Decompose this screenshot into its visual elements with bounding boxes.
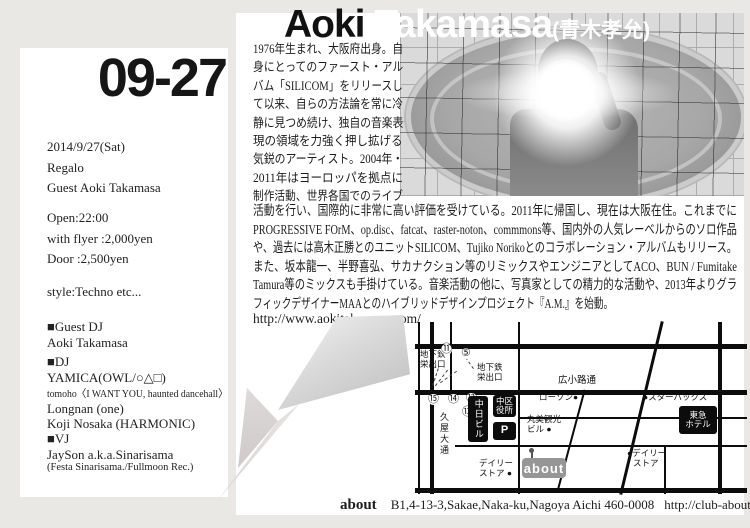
exit-number-11: ⑪ (441, 344, 452, 355)
camera-flash-core (533, 59, 597, 121)
road (718, 322, 722, 494)
artist-bio-column: 1976年生まれ、大阪府出身。自 身にとってのファースト・アル バム「SILIC… (253, 38, 429, 204)
road (430, 322, 434, 494)
bio-line: や、過去には高木正勝とのユニットSILICOM、Tujiko Norikoとのコ… (253, 236, 750, 255)
dj-name: tomoho〈I WANT YOU, haunted dancehall〉 (47, 385, 252, 401)
poi-daily-store-left: デイリー ストア ● (479, 458, 513, 478)
music-style: style:Techno etc... (47, 284, 141, 300)
bio-line: PROGRESSIVE FOrM、op.disc、fatcat、raster-n… (253, 218, 750, 237)
event-basic-info: 2014/9/27(Sat) Regalo Guest Aoki Takamas… (47, 139, 161, 201)
venue-name: about (340, 497, 377, 513)
artist-kanji-name: (青木孝允) (552, 19, 650, 42)
street-hisaya: 久屋大通 (439, 412, 449, 456)
building-tokyu-hotel: 東急ホテル (679, 406, 717, 434)
event-date-title: 09-27 (20, 51, 226, 105)
bio-line: 気鋭のアーティスト。2004年・ (253, 148, 429, 166)
road (455, 445, 747, 447)
exit-number-14: ⑭ (448, 394, 459, 405)
artist-first-name: Aoki (284, 3, 365, 46)
poi-starbucks: ●スターバックス (643, 392, 707, 402)
dj-name: Longnan (one) (47, 401, 252, 417)
lineup-guest-dj: ■Guest DJ Aoki Takamasa (47, 319, 128, 350)
subway-exit-label: 地下鉄 栄出口 (477, 362, 503, 382)
building-ward-office: 中区役所 (493, 395, 516, 417)
bio-line: Tamura等のミックスも手掛けている。音楽活動の他に、写真家としての精力的な活… (253, 273, 750, 292)
vj-crew: (Festa Sinarisama./Fullmoon Rec.) (47, 462, 193, 478)
event-door-info: Open:22:00 with flyer :2,000yen Door :2,… (47, 210, 153, 272)
venue-map: 地下鉄 栄出口 地下鉄 栄出口 ⑪ ⑤ ⑮ ⑭ ⑫ ⑬ 広小路通 久屋大通 中日… (415, 322, 747, 494)
artist-last-name: Takamasa (374, 3, 552, 46)
bio-line: バム「SILICOM」をリリースし (253, 75, 429, 93)
vj-name: JaySon a.k.a.Sinarisama (47, 447, 193, 463)
venue-logo-box: about (522, 458, 566, 478)
bio-line: また、坂本龍一、半野喜弘、サカナクション等のリミックスやエンジニアとしてACO、… (253, 255, 750, 274)
street-hirokoji: 広小路通 (558, 376, 596, 386)
road (418, 322, 420, 494)
venue-address-line: aboutB1,4-13-3,Sakae,Naka-ku,Nagoya Aich… (340, 497, 750, 514)
event-info-card: 09-27 2014/9/27(Sat) Regalo Guest Aoki T… (20, 48, 228, 497)
vj-heading: ■VJ (47, 431, 193, 447)
price-with-flyer: with flyer :2,000yen (47, 231, 153, 252)
poi-daily-store-right: ●デイリー ストア (627, 448, 666, 468)
event-flyer: 09-27 2014/9/27(Sat) Regalo Guest Aoki T… (0, 0, 750, 528)
dj-name: YAMICA(OWL/○△□) (47, 370, 252, 386)
lineup-dj: ■DJ YAMICA(OWL/○△□) tomoho〈I WANT YOU, h… (47, 354, 252, 432)
event-venue: Regalo (47, 160, 161, 181)
artist-bio-paragraph: 活動を行い、国際的に非常に高い評価を受けている。2011年に帰国し、現在は大阪在… (253, 199, 750, 329)
poi-marumi-bldg: 丸美観光 ビル ● (527, 414, 561, 434)
price-door: Door :2,500yen (47, 251, 153, 272)
artist-name-headline: Aoki Takamasa(青木孝允) (284, 5, 650, 46)
open-time: Open:22:00 (47, 210, 153, 231)
dj-name: Koji Nosaka (HARMONIC) (47, 416, 252, 432)
exit-number-15: ⑮ (428, 394, 439, 405)
bio-line: 2011年はヨーロッパを拠点に (253, 167, 429, 185)
building-chunichi: 中日ビル (468, 396, 488, 442)
venue-address: B1,4-13-3,Sakae,Naka-ku,Nagoya Aichi 460… (391, 497, 655, 512)
road (518, 322, 520, 494)
bio-line: フィックデザイナーMAAとのハイブリッドデザインプロジェクト『A.M.』を始動。 (253, 292, 750, 311)
road (415, 488, 747, 493)
exit-number-5: ⑤ (461, 348, 471, 359)
venue-url: http://club-about.com (664, 497, 750, 512)
building-parking: P (493, 422, 516, 440)
lineup-vj: ■VJ JaySon a.k.a.Sinarisama (Festa Sinar… (47, 431, 193, 478)
bio-line: 静に見つめ続け、独自の音楽表 (253, 112, 429, 130)
event-date: 2014/9/27(Sat) (47, 139, 161, 160)
road (450, 322, 452, 392)
dj-heading: ■DJ (47, 354, 252, 370)
guest-dj-heading: ■Guest DJ (47, 319, 128, 335)
event-guest: Guest Aoki Takamasa (47, 180, 161, 201)
poi-lawson: ローソン● (539, 392, 578, 402)
bio-line: 身にとってのファースト・アル (253, 56, 429, 74)
bio-line: て以来、自らの方法論を常に冷 (253, 93, 429, 111)
bio-line: 現の領域を力強く押し拡げる (253, 130, 429, 148)
bio-line: 活動を行い、国際的に非常に高い評価を受けている。2011年に帰国し、現在は大阪在… (253, 199, 750, 218)
guest-dj-name: Aoki Takamasa (47, 335, 128, 351)
